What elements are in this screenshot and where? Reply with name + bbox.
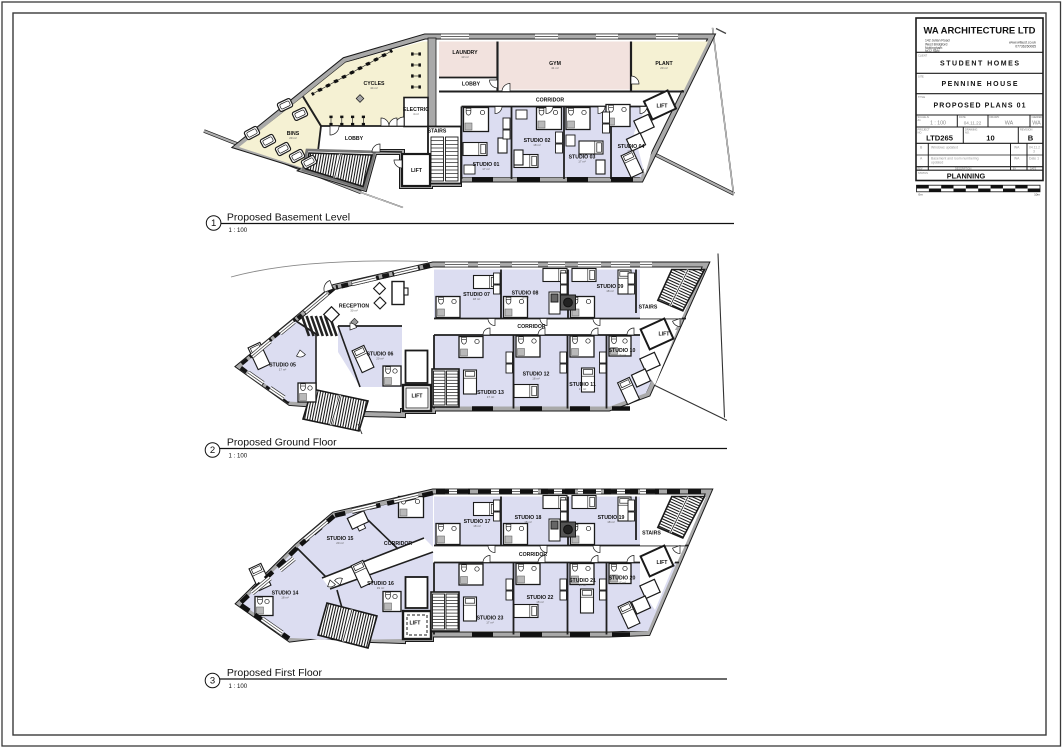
svg-text:2: 2 xyxy=(210,445,215,456)
svg-text:Proposed First Floor: Proposed First Floor xyxy=(227,667,323,679)
svg-text:41 m²: 41 m² xyxy=(551,66,558,70)
svg-text:20 m²: 20 m² xyxy=(336,541,343,545)
svg-text:1 : 100: 1 : 100 xyxy=(930,121,946,127)
svg-text:07736260065: 07736260065 xyxy=(1015,44,1036,48)
svg-text:DATE: DATE xyxy=(959,115,966,119)
svg-text:PROPOSED PLANS 01: PROPOSED PLANS 01 xyxy=(934,103,1026,110)
svg-text:10m: 10m xyxy=(1034,193,1040,197)
svg-text:CLIENT: CLIENT xyxy=(918,54,928,58)
svg-text:17 m²: 17 m² xyxy=(627,149,634,153)
svg-text:CORRIDOR: CORRIDOR xyxy=(519,552,547,558)
svg-text:4 m²: 4 m² xyxy=(413,112,419,116)
svg-text:17 m²: 17 m² xyxy=(578,160,585,164)
svg-text:20 m²: 20 m² xyxy=(660,66,667,70)
svg-text:WA: WA xyxy=(1014,146,1020,150)
svg-text:LOBBY: LOBBY xyxy=(462,82,481,88)
svg-text:A1: A1 xyxy=(918,118,922,122)
svg-text:Proposed Basement Level: Proposed Basement Level xyxy=(227,212,350,224)
svg-text:Windows updated: Windows updated xyxy=(931,146,958,150)
svg-text:30 m²: 30 m² xyxy=(350,309,357,313)
svg-text:18 m²: 18 m² xyxy=(473,524,480,528)
svg-text:CORRIDOR: CORRIDOR xyxy=(536,98,564,104)
svg-text:CORRIDOR: CORRIDOR xyxy=(517,324,545,330)
svg-text:STAIRS: STAIRS xyxy=(639,305,658,311)
svg-text:BY: BY xyxy=(1013,167,1017,170)
svg-text:Date 1: Date 1 xyxy=(1029,157,1039,161)
svg-text:STAIRS: STAIRS xyxy=(428,129,447,135)
svg-text:1 : 100: 1 : 100 xyxy=(229,683,248,690)
svg-text:18 m²: 18 m² xyxy=(533,143,540,147)
svg-text:B: B xyxy=(1028,134,1034,143)
svg-text:44 m²: 44 m² xyxy=(370,86,377,90)
svg-text:DRAWN: DRAWN xyxy=(990,115,1000,119)
svg-text:17 m²: 17 m² xyxy=(482,167,489,171)
svg-text:18 m²: 18 m² xyxy=(607,520,614,524)
svg-text:3: 3 xyxy=(1033,150,1035,154)
svg-text:Proposed Ground Floor: Proposed Ground Floor xyxy=(227,437,337,449)
svg-text:17 m²: 17 m² xyxy=(618,353,625,357)
svg-text:18 m²: 18 m² xyxy=(281,596,288,600)
svg-text:17 m²: 17 m² xyxy=(579,583,586,587)
svg-text:18 m²: 18 m² xyxy=(521,296,528,300)
svg-text:1: 1 xyxy=(211,218,216,229)
svg-text:STAIRS: STAIRS xyxy=(642,531,661,537)
svg-text:LIFT: LIFT xyxy=(410,621,422,627)
svg-text:SITE: SITE xyxy=(918,75,924,79)
svg-text:CORRIDOR: CORRIDOR xyxy=(384,541,412,547)
svg-text:LIFT: LIFT xyxy=(411,168,423,174)
svg-text:19 m²: 19 m² xyxy=(377,586,384,590)
svg-text:1 : 100: 1 : 100 xyxy=(229,227,248,234)
svg-text:STATUS: STATUS xyxy=(918,171,928,175)
svg-text:13 m²: 13 m² xyxy=(461,55,468,59)
svg-text:18 m²: 18 m² xyxy=(536,600,543,604)
svg-text:DESCRIPTION: DESCRIPTION xyxy=(955,167,972,170)
svg-text:17 m²: 17 m² xyxy=(487,395,494,399)
svg-text:REV: REV xyxy=(918,167,923,170)
svg-text:NO.: NO. xyxy=(965,130,970,134)
svg-text:1 : 100: 1 : 100 xyxy=(229,452,248,459)
svg-text:17 m²: 17 m² xyxy=(279,368,286,372)
svg-text:04.11.22: 04.11.22 xyxy=(964,120,982,125)
svg-text:NO.: NO. xyxy=(918,130,923,134)
svg-text:WA: WA xyxy=(1014,157,1020,161)
svg-text:17 m²: 17 m² xyxy=(579,387,586,391)
svg-text:PENNINE HOUSE: PENNINE HOUSE xyxy=(942,81,1018,88)
svg-text:17 m²: 17 m² xyxy=(486,621,493,625)
svg-text:LIFT: LIFT xyxy=(659,332,671,338)
svg-text:20 m²: 20 m² xyxy=(289,136,296,140)
svg-text:TITLE: TITLE xyxy=(918,95,925,99)
svg-text:18 m²: 18 m² xyxy=(473,297,480,301)
svg-text:LIFT: LIFT xyxy=(657,104,669,110)
svg-text:18 m²: 18 m² xyxy=(524,520,531,524)
svg-text:updated: updated xyxy=(931,161,943,165)
svg-text:WA: WA xyxy=(1005,120,1014,126)
svg-text:20 m²: 20 m² xyxy=(376,357,383,361)
svg-text:STUDENT HOMES: STUDENT HOMES xyxy=(940,61,1019,68)
svg-text:0m: 0m xyxy=(918,193,923,197)
svg-text:18 m²: 18 m² xyxy=(606,289,613,293)
svg-text:LIFT: LIFT xyxy=(657,560,669,566)
svg-text:WA ARCHITECTURE LTD: WA ARCHITECTURE LTD xyxy=(924,25,1036,36)
svg-text:17 m²: 17 m² xyxy=(618,581,625,585)
svg-text:CHECKED: CHECKED xyxy=(1032,115,1043,119)
svg-text:10: 10 xyxy=(986,133,994,142)
svg-text:LOBBY: LOBBY xyxy=(345,136,364,142)
svg-text:WA: WA xyxy=(1032,120,1041,126)
svg-text:DATE: DATE xyxy=(1030,167,1037,170)
svg-text:PLANNING: PLANNING xyxy=(947,171,986,180)
svg-text:REVISION: REVISION xyxy=(1020,127,1033,131)
svg-text:LTD265: LTD265 xyxy=(926,133,954,142)
svg-text:LIFT: LIFT xyxy=(412,394,424,400)
svg-text:18 m²: 18 m² xyxy=(532,377,539,381)
svg-text:NG2 5AN: NG2 5AN xyxy=(925,49,940,53)
svg-text:3: 3 xyxy=(210,676,215,687)
